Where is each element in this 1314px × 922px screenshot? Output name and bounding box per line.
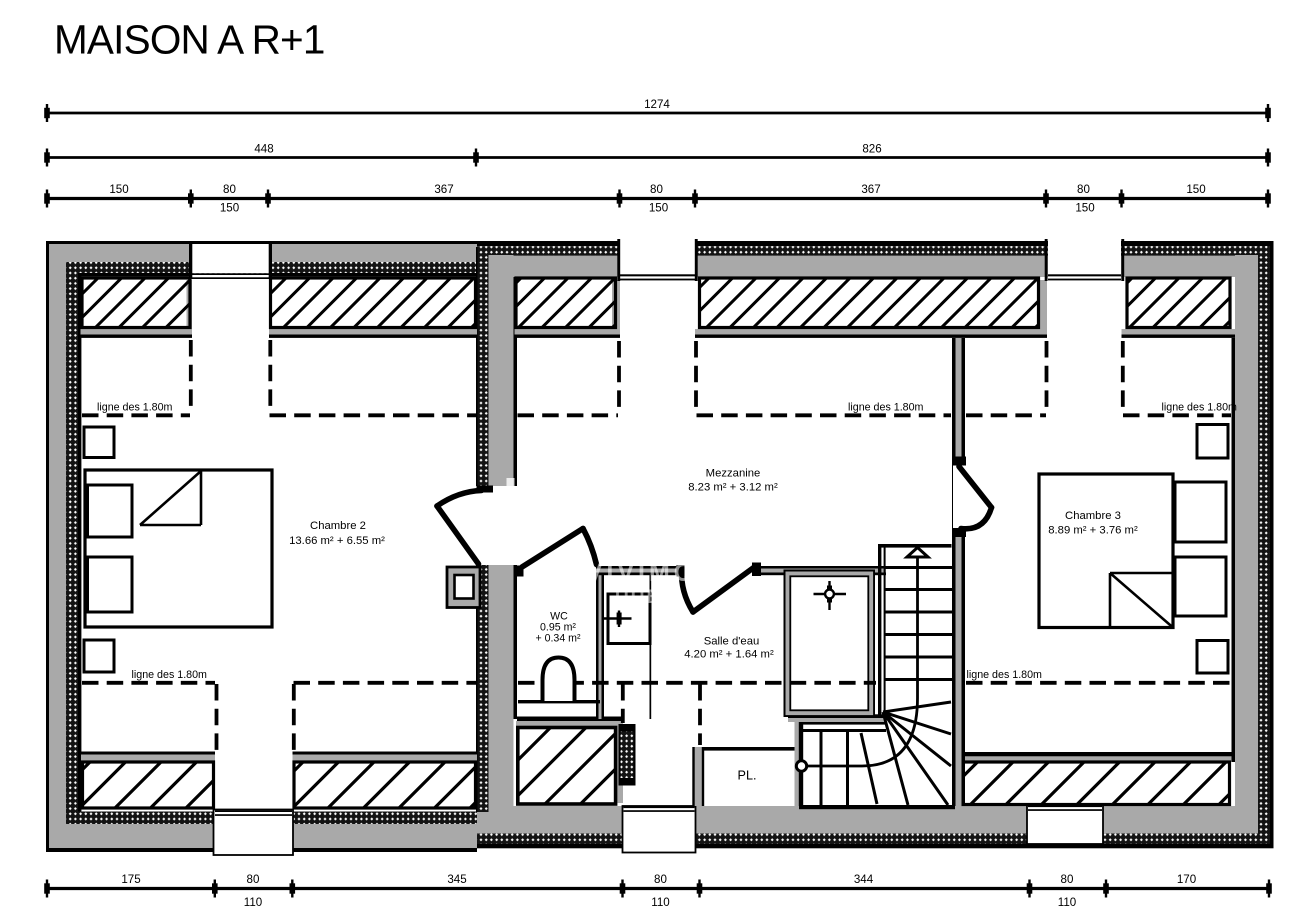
svg-text:367: 367 (861, 183, 880, 196)
svg-text:ligne des 1.80m: ligne des 1.80m (967, 669, 1043, 681)
svg-text:80: 80 (223, 183, 236, 196)
svg-text:150: 150 (1075, 202, 1094, 215)
svg-text:VIVIMOBI: VIVIMOBI (586, 559, 731, 587)
svg-text:345: 345 (447, 873, 466, 886)
svg-text:150: 150 (649, 202, 668, 215)
svg-text:Chambre 2: Chambre 2 (310, 520, 366, 532)
svg-text:80: 80 (1077, 183, 1090, 196)
svg-text:4.20 m² + 1.64 m²: 4.20 m² + 1.64 m² (684, 649, 774, 661)
svg-text:150: 150 (220, 202, 239, 215)
svg-text:ligne des 1.80m: ligne des 1.80m (848, 402, 924, 414)
svg-text:8.23 m² + 3.12 m²: 8.23 m² + 3.12 m² (688, 482, 778, 494)
svg-text:Mezzanine: Mezzanine (706, 468, 761, 480)
svg-text:UUE 6: UUE 6 (615, 587, 681, 608)
svg-text:367: 367 (434, 183, 453, 196)
svg-text:110: 110 (1058, 896, 1076, 909)
svg-text:110: 110 (244, 896, 262, 909)
svg-text:175: 175 (121, 873, 140, 886)
svg-text:ligne des 1.80m: ligne des 1.80m (97, 402, 173, 414)
svg-text:80: 80 (1061, 873, 1074, 886)
svg-text:MAISON A R+1: MAISON A R+1 (54, 17, 325, 63)
svg-text:+ 0.34 m²: + 0.34 m² (535, 633, 581, 645)
svg-text:170: 170 (1177, 873, 1196, 886)
svg-text:826: 826 (862, 143, 881, 156)
svg-text:8.89 m² + 3.76 m²: 8.89 m² + 3.76 m² (1048, 525, 1138, 537)
svg-text:80: 80 (650, 183, 663, 196)
svg-text:448: 448 (254, 143, 273, 156)
svg-text:ligne des 1.80m: ligne des 1.80m (1162, 402, 1238, 414)
svg-text:13.66 m² + 6.55 m²: 13.66 m² + 6.55 m² (289, 535, 385, 547)
svg-text:344: 344 (854, 873, 874, 886)
svg-text:1274: 1274 (644, 98, 670, 111)
svg-text:150: 150 (109, 183, 128, 196)
svg-text:110: 110 (651, 896, 669, 909)
svg-text:PL.: PL. (738, 769, 757, 783)
svg-text:ligne des 1.80m: ligne des 1.80m (132, 669, 208, 681)
svg-text:Chambre 3: Chambre 3 (1065, 510, 1121, 522)
svg-text:150: 150 (1186, 183, 1205, 196)
svg-text:80: 80 (247, 873, 260, 886)
svg-text:80: 80 (654, 873, 667, 886)
svg-text:Salle d'eau: Salle d'eau (704, 636, 760, 648)
